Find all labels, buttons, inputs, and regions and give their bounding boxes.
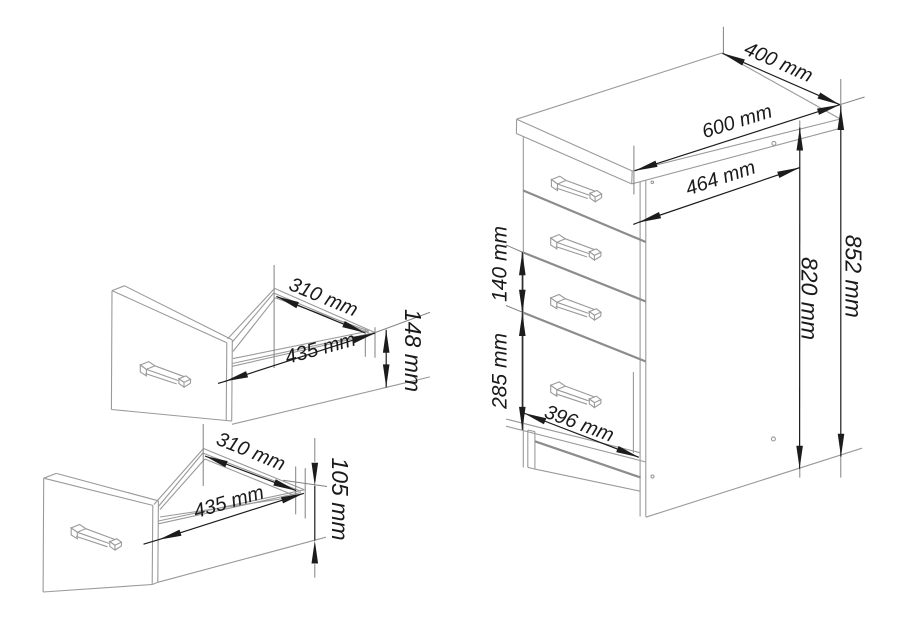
svg-text:285 mm: 285 mm [489, 333, 512, 410]
svg-text:852 mm: 852 mm [841, 235, 867, 318]
svg-text:820 mm: 820 mm [797, 257, 823, 340]
svg-text:105 mm: 105 mm [327, 457, 353, 540]
svg-text:140 mm: 140 mm [489, 226, 512, 302]
svg-text:148 mm: 148 mm [400, 309, 426, 392]
